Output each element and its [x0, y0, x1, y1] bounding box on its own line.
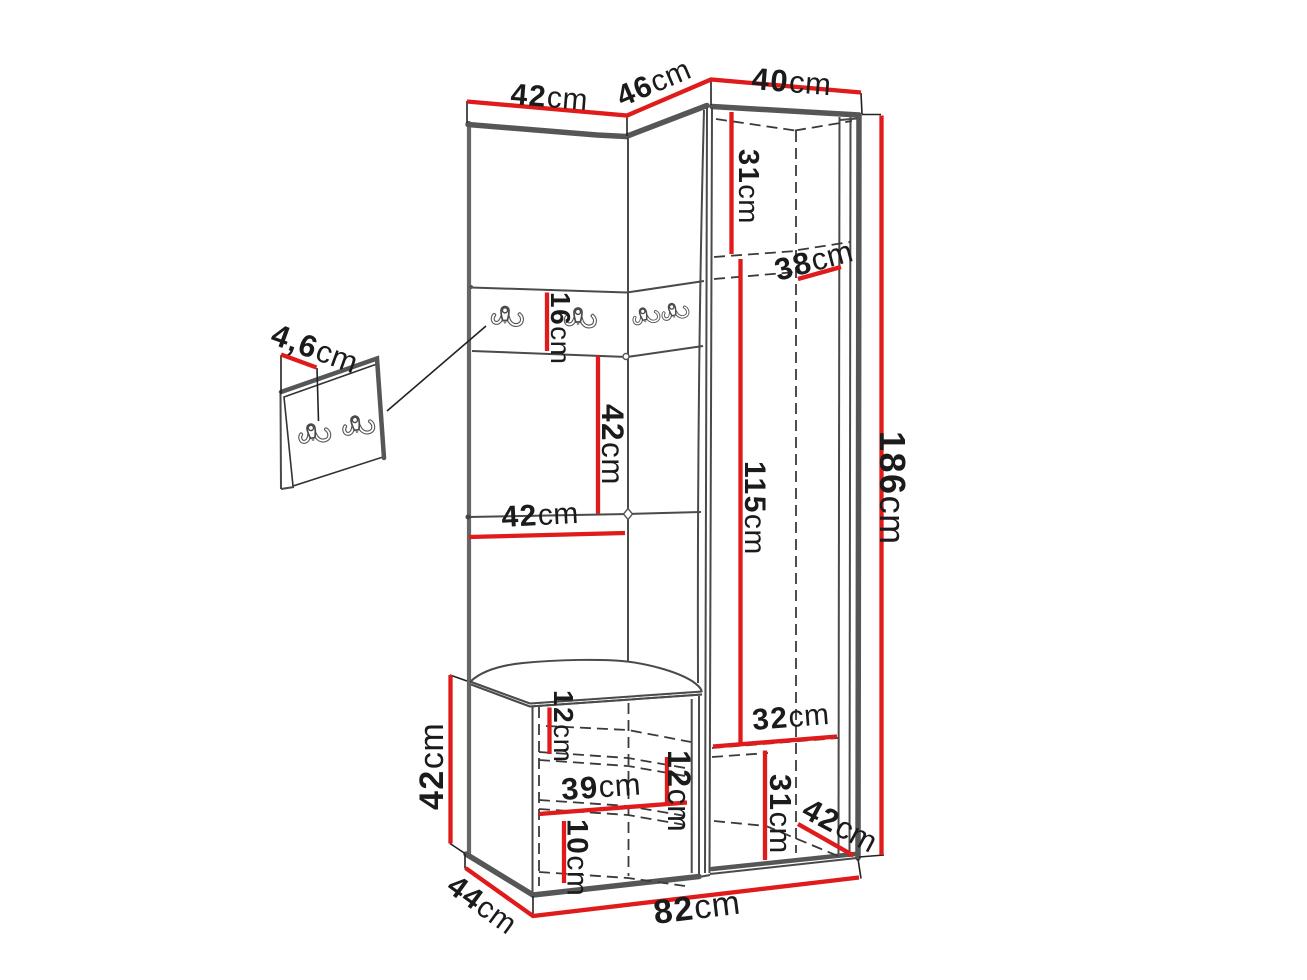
svg-text:42cm: 42cm [595, 404, 631, 485]
svg-text:16cm: 16cm [545, 292, 576, 364]
svg-text:12cm: 12cm [548, 690, 579, 762]
svg-text:31cm: 31cm [732, 149, 764, 224]
svg-text:42cm: 42cm [413, 723, 451, 810]
svg-text:32cm: 32cm [751, 698, 831, 737]
svg-text:186cm: 186cm [872, 431, 913, 545]
svg-text:115cm: 115cm [738, 461, 771, 555]
svg-text:40cm: 40cm [750, 61, 832, 102]
svg-text:42cm: 42cm [501, 497, 580, 534]
svg-text:39cm: 39cm [560, 767, 642, 807]
svg-text:42cm: 42cm [509, 78, 589, 117]
svg-text:10cm: 10cm [561, 819, 594, 896]
svg-text:31cm: 31cm [763, 774, 798, 854]
svg-text:12cm: 12cm [661, 750, 697, 832]
